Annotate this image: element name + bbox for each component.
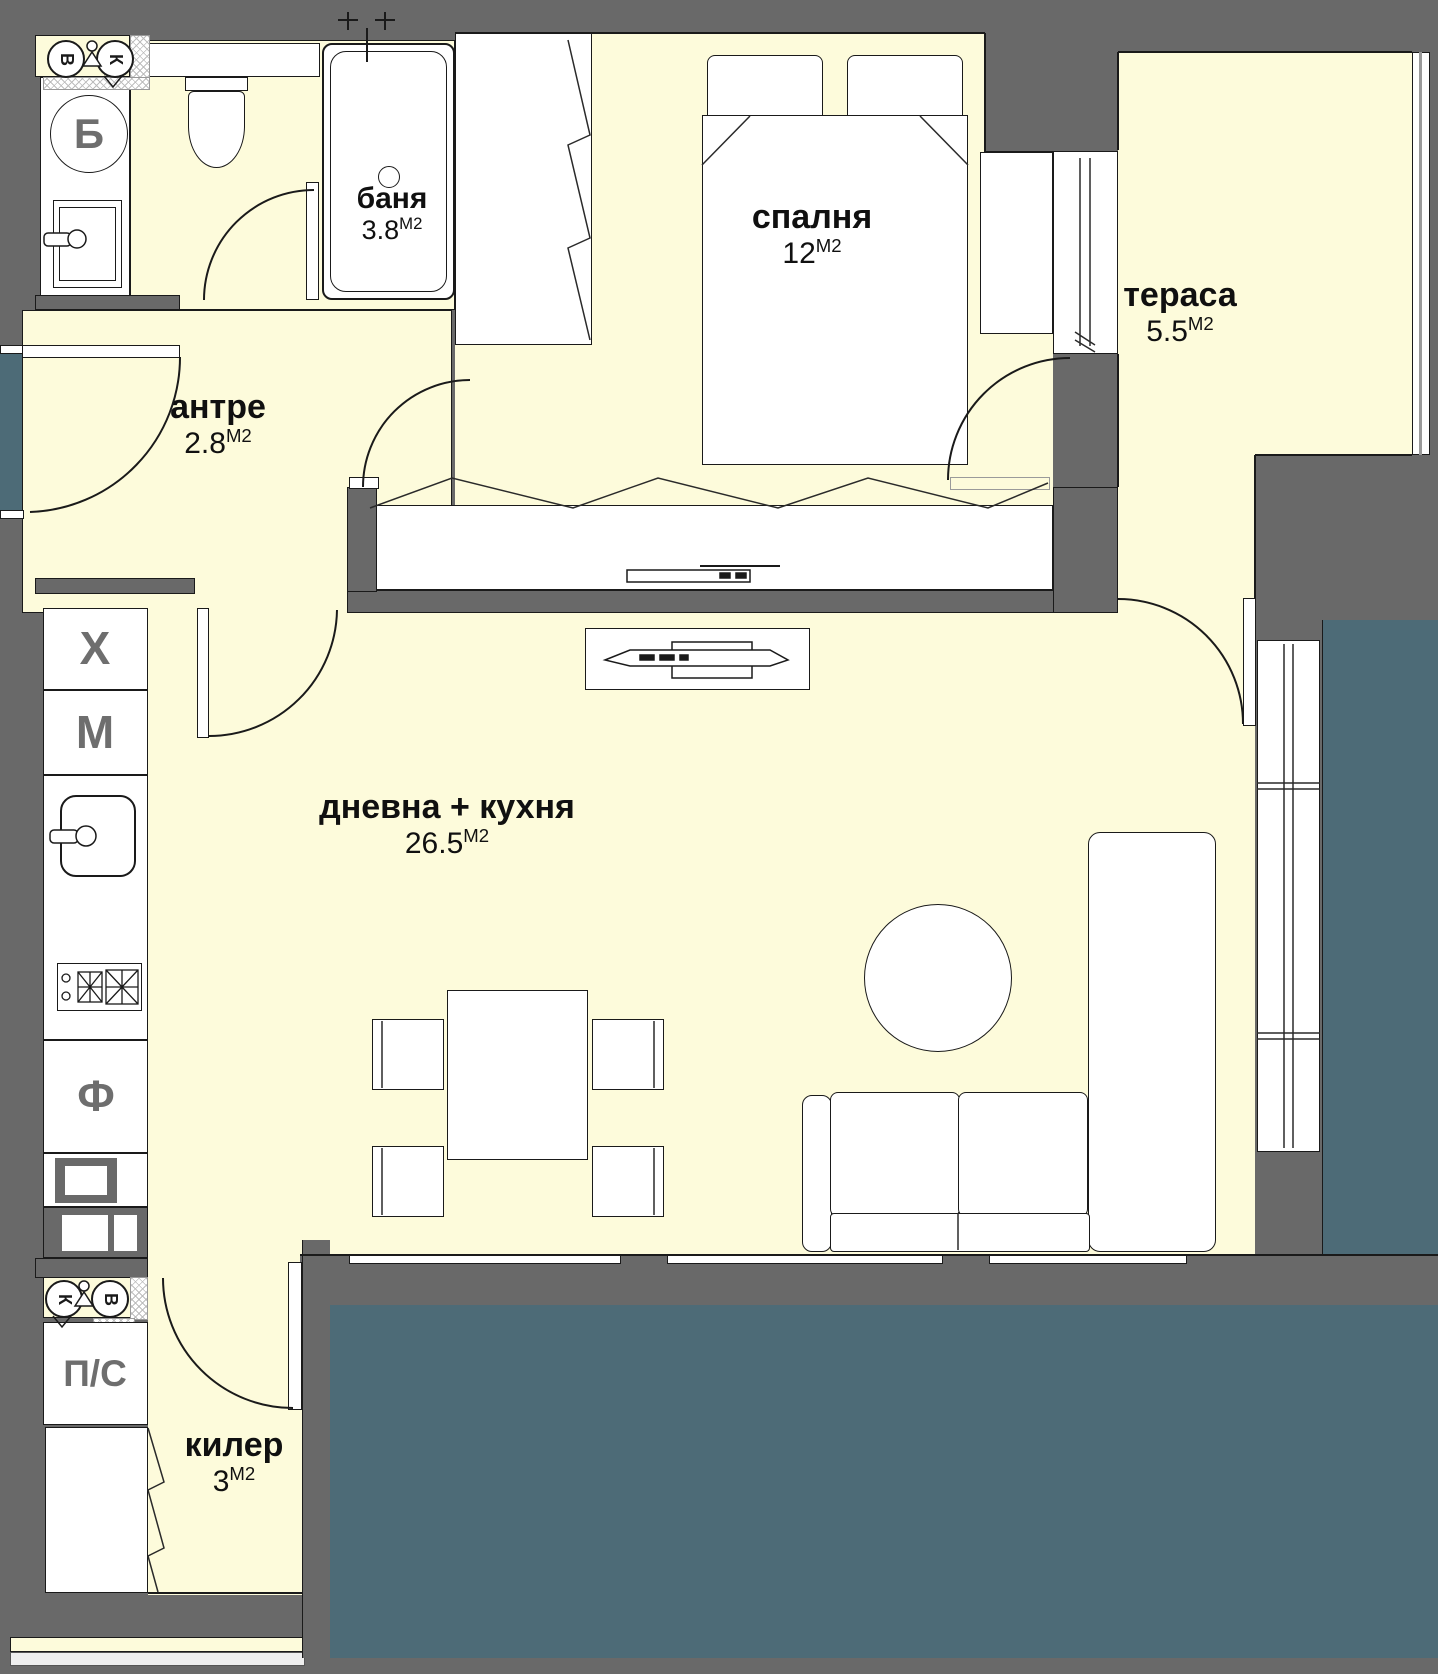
label-kiler-unit: М2 xyxy=(229,1463,255,1484)
label-kiler-name: килер xyxy=(185,1428,284,1464)
wall-kiler-right xyxy=(302,1240,330,1658)
exterior-entrance-landing xyxy=(0,353,22,510)
water-symbol-bottom: В xyxy=(91,1280,129,1318)
wall-antre-living-left xyxy=(35,578,195,594)
room-terrace-floor-lower xyxy=(1118,455,1255,600)
label-antre-name: антре xyxy=(170,390,266,426)
bottom-ledge-floor xyxy=(10,1637,305,1652)
room-kiler-floor xyxy=(148,1255,302,1595)
dining-chair-2 xyxy=(592,1019,664,1090)
shaft-1-core xyxy=(65,1166,107,1195)
exterior-bottom-zone xyxy=(330,1305,1438,1658)
sofa-chaise xyxy=(1088,832,1216,1252)
south-window-sill-3 xyxy=(989,1255,1187,1264)
wall-column-terrace xyxy=(1053,487,1118,613)
sewer-symbol-letter-2: К xyxy=(54,1294,75,1305)
water-symbol-letter: В xyxy=(56,53,77,66)
wall-above-utility xyxy=(35,1258,148,1278)
bedroom-window-niche xyxy=(980,152,1053,334)
hatch-bottom-right xyxy=(130,1277,148,1320)
bathroom-sink-basin xyxy=(59,207,116,281)
south-window-sill-2 xyxy=(667,1255,943,1264)
sewer-symbol-top: К xyxy=(96,40,134,78)
dining-chair-4 xyxy=(592,1146,664,1217)
sofa-seat xyxy=(830,1213,1090,1252)
bedroom-door-jamb xyxy=(349,477,379,489)
label-kiler: килер 3М2 xyxy=(185,1428,284,1497)
wardrobe-rail xyxy=(950,477,1050,490)
south-window-sill-1 xyxy=(349,1255,621,1264)
label-bathroom: баня 3.8М2 xyxy=(357,183,428,244)
water-symbol-letter-2: В xyxy=(100,1293,121,1306)
dining-chair-1 xyxy=(372,1019,444,1090)
label-bedroom-unit: М2 xyxy=(816,235,842,256)
wall-top-right-band xyxy=(985,0,1438,52)
label-bathroom-area: 3.8 xyxy=(362,215,400,245)
label-antre: антре 2.8М2 xyxy=(170,390,266,459)
sofa-armrest-left xyxy=(802,1095,832,1252)
washer-dryer-label: П/С xyxy=(63,1353,127,1395)
shaft-2-core-a xyxy=(62,1215,108,1251)
label-bathroom-unit: М2 xyxy=(399,214,422,233)
bottom-ledge-sill xyxy=(10,1652,305,1666)
kitchen-stove xyxy=(57,963,142,1011)
bathroom-door-leaf xyxy=(306,182,319,300)
toilet-tank xyxy=(185,77,248,91)
label-antre-area: 2.8 xyxy=(184,427,226,460)
room-terrace-floor xyxy=(1118,52,1412,455)
kitchen-top-gap xyxy=(43,592,148,608)
entrance-sill-bottom xyxy=(0,510,24,519)
kitchen-sink xyxy=(60,795,136,877)
bedroom-terrace-window xyxy=(1053,150,1118,354)
label-terrace: тераса 5.5М2 xyxy=(1123,278,1236,347)
terrace-living-door-leaf xyxy=(1243,598,1256,726)
fridge-label: Х xyxy=(80,621,111,675)
coffee-table-round xyxy=(864,904,1012,1052)
sewer-symbol-letter: К xyxy=(105,54,126,65)
label-living-name: дневна + кухня xyxy=(319,790,575,826)
kiler-door-leaf xyxy=(288,1262,302,1410)
label-terrace-name: тераса xyxy=(1123,278,1236,314)
kiler-wardrobe xyxy=(45,1427,148,1593)
dining-table xyxy=(447,990,588,1160)
label-terrace-area: 5.5 xyxy=(1146,315,1188,348)
label-bathroom-name: баня xyxy=(357,183,428,215)
floor-plan: Б В К К В Х М Ф П/С баня 3.8М2 спалня 12… xyxy=(0,0,1438,1674)
label-living-unit: М2 xyxy=(463,825,489,846)
wall-column-antre xyxy=(347,487,377,592)
bed-blanket xyxy=(702,115,968,465)
hall-wardrobe xyxy=(363,505,1053,590)
label-bedroom: спалня 12М2 xyxy=(752,200,872,269)
wall-bath-antre xyxy=(35,295,180,310)
boiler-circle: Б xyxy=(50,95,128,173)
oven-label: Ф xyxy=(77,1072,115,1122)
shaft-2-core-b xyxy=(114,1215,137,1251)
water-symbol-top: В xyxy=(47,40,85,78)
label-bedroom-area: 12 xyxy=(782,237,815,270)
entrance-sill-top xyxy=(0,345,24,354)
label-living: дневна + кухня 26.5М2 xyxy=(319,790,575,859)
entrance-door-leaf xyxy=(22,345,180,358)
label-bedroom-name: спалня xyxy=(752,200,872,236)
label-terrace-unit: М2 xyxy=(1188,313,1214,334)
boiler-label: Б xyxy=(74,110,104,158)
label-living-area: 26.5 xyxy=(405,827,463,860)
tv-console xyxy=(585,628,810,690)
living-door-leaf xyxy=(197,608,209,738)
hatch-top-below xyxy=(43,77,150,90)
bedroom-closet xyxy=(455,33,592,345)
bathroom-counter xyxy=(130,43,320,77)
sofa-back-cushion-2 xyxy=(958,1092,1088,1217)
dishwasher-label: М xyxy=(76,705,114,759)
label-antre-unit: М2 xyxy=(226,425,252,446)
dining-chair-3 xyxy=(372,1146,444,1217)
terrace-railing-divider xyxy=(1419,52,1422,455)
label-kiler-area: 3 xyxy=(213,1465,230,1498)
sewer-symbol-bottom: К xyxy=(45,1280,83,1318)
living-east-window xyxy=(1257,640,1320,1152)
sofa-back-cushion-1 xyxy=(830,1092,960,1217)
wall-terrace-corner xyxy=(1255,455,1438,620)
wall-below-wardrobe xyxy=(347,590,1065,613)
